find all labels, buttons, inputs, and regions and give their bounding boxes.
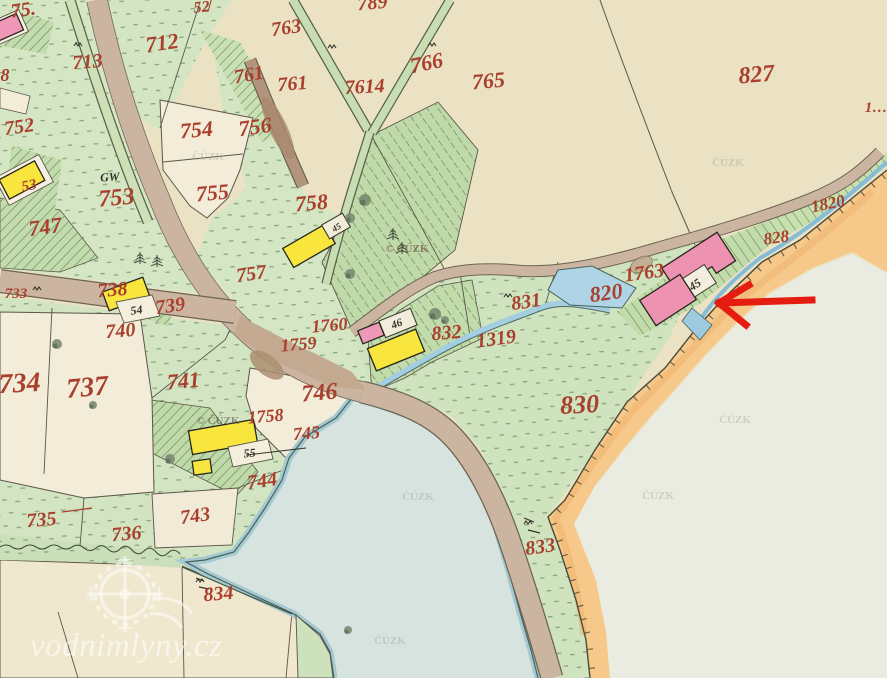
svg-text:739: 739 bbox=[154, 293, 187, 319]
svg-text:741: 741 bbox=[166, 367, 201, 395]
svg-text:830: 830 bbox=[559, 389, 599, 420]
svg-text:743: 743 bbox=[179, 503, 212, 529]
svg-text:827: 827 bbox=[737, 60, 776, 89]
svg-text:vodnimlyny.cz: vodnimlyny.cz bbox=[30, 628, 223, 664]
svg-text:1759: 1759 bbox=[280, 332, 318, 355]
svg-text:8: 8 bbox=[1, 65, 10, 85]
svg-text:712: 712 bbox=[144, 28, 180, 57]
svg-text:754: 754 bbox=[179, 116, 214, 144]
svg-text:733: 733 bbox=[5, 286, 28, 302]
svg-text:1760: 1760 bbox=[311, 313, 349, 336]
svg-text:834: 834 bbox=[203, 582, 235, 607]
svg-text:752: 752 bbox=[3, 114, 36, 140]
svg-text:820: 820 bbox=[588, 278, 624, 307]
svg-text:763: 763 bbox=[270, 15, 303, 41]
svg-text:757: 757 bbox=[235, 261, 269, 287]
svg-text:744: 744 bbox=[246, 468, 279, 494]
svg-text:75.: 75. bbox=[9, 0, 37, 23]
svg-text:ČÚZK: ČÚZK bbox=[374, 634, 406, 647]
svg-text:753: 753 bbox=[97, 184, 135, 213]
svg-text:736: 736 bbox=[111, 522, 143, 547]
svg-text:© ČÚZK: © ČÚZK bbox=[197, 414, 240, 427]
svg-text:833: 833 bbox=[524, 534, 557, 560]
svg-text:54: 54 bbox=[130, 302, 144, 318]
svg-text:ČÚZK: ČÚZK bbox=[642, 489, 674, 502]
svg-text:831: 831 bbox=[510, 289, 543, 315]
svg-text:761: 761 bbox=[277, 72, 309, 97]
svg-text:ČÚZK: ČÚZK bbox=[192, 150, 224, 163]
svg-text:7614: 7614 bbox=[344, 75, 385, 99]
svg-text:745: 745 bbox=[292, 422, 321, 444]
svg-text:765: 765 bbox=[471, 67, 506, 95]
svg-text:ČÚZK: ČÚZK bbox=[402, 490, 434, 503]
svg-text:1…: 1… bbox=[865, 100, 887, 116]
svg-text:713: 713 bbox=[72, 50, 104, 75]
svg-text:832: 832 bbox=[431, 321, 463, 346]
svg-text:ČÚZK: ČÚZK bbox=[712, 156, 744, 169]
svg-text:GW: GW bbox=[100, 169, 121, 184]
svg-text:735: 735 bbox=[26, 508, 58, 533]
svg-text:738: 738 bbox=[97, 278, 129, 303]
svg-text:755: 755 bbox=[195, 179, 230, 207]
svg-text:1758: 1758 bbox=[247, 404, 285, 427]
svg-text:ČÚZK: ČÚZK bbox=[719, 413, 751, 426]
svg-text:758: 758 bbox=[294, 189, 329, 217]
svg-text:746: 746 bbox=[300, 379, 338, 408]
svg-text:734: 734 bbox=[0, 367, 41, 400]
svg-text:© ČÚZK: © ČÚZK bbox=[386, 242, 429, 255]
svg-text:55: 55 bbox=[243, 446, 256, 461]
svg-text:747: 747 bbox=[27, 212, 64, 241]
svg-text:740: 740 bbox=[105, 319, 137, 344]
svg-text:737: 737 bbox=[65, 370, 111, 405]
svg-text:756: 756 bbox=[237, 112, 273, 141]
svg-text:828: 828 bbox=[762, 226, 790, 248]
svg-text:789: 789 bbox=[357, 0, 389, 15]
